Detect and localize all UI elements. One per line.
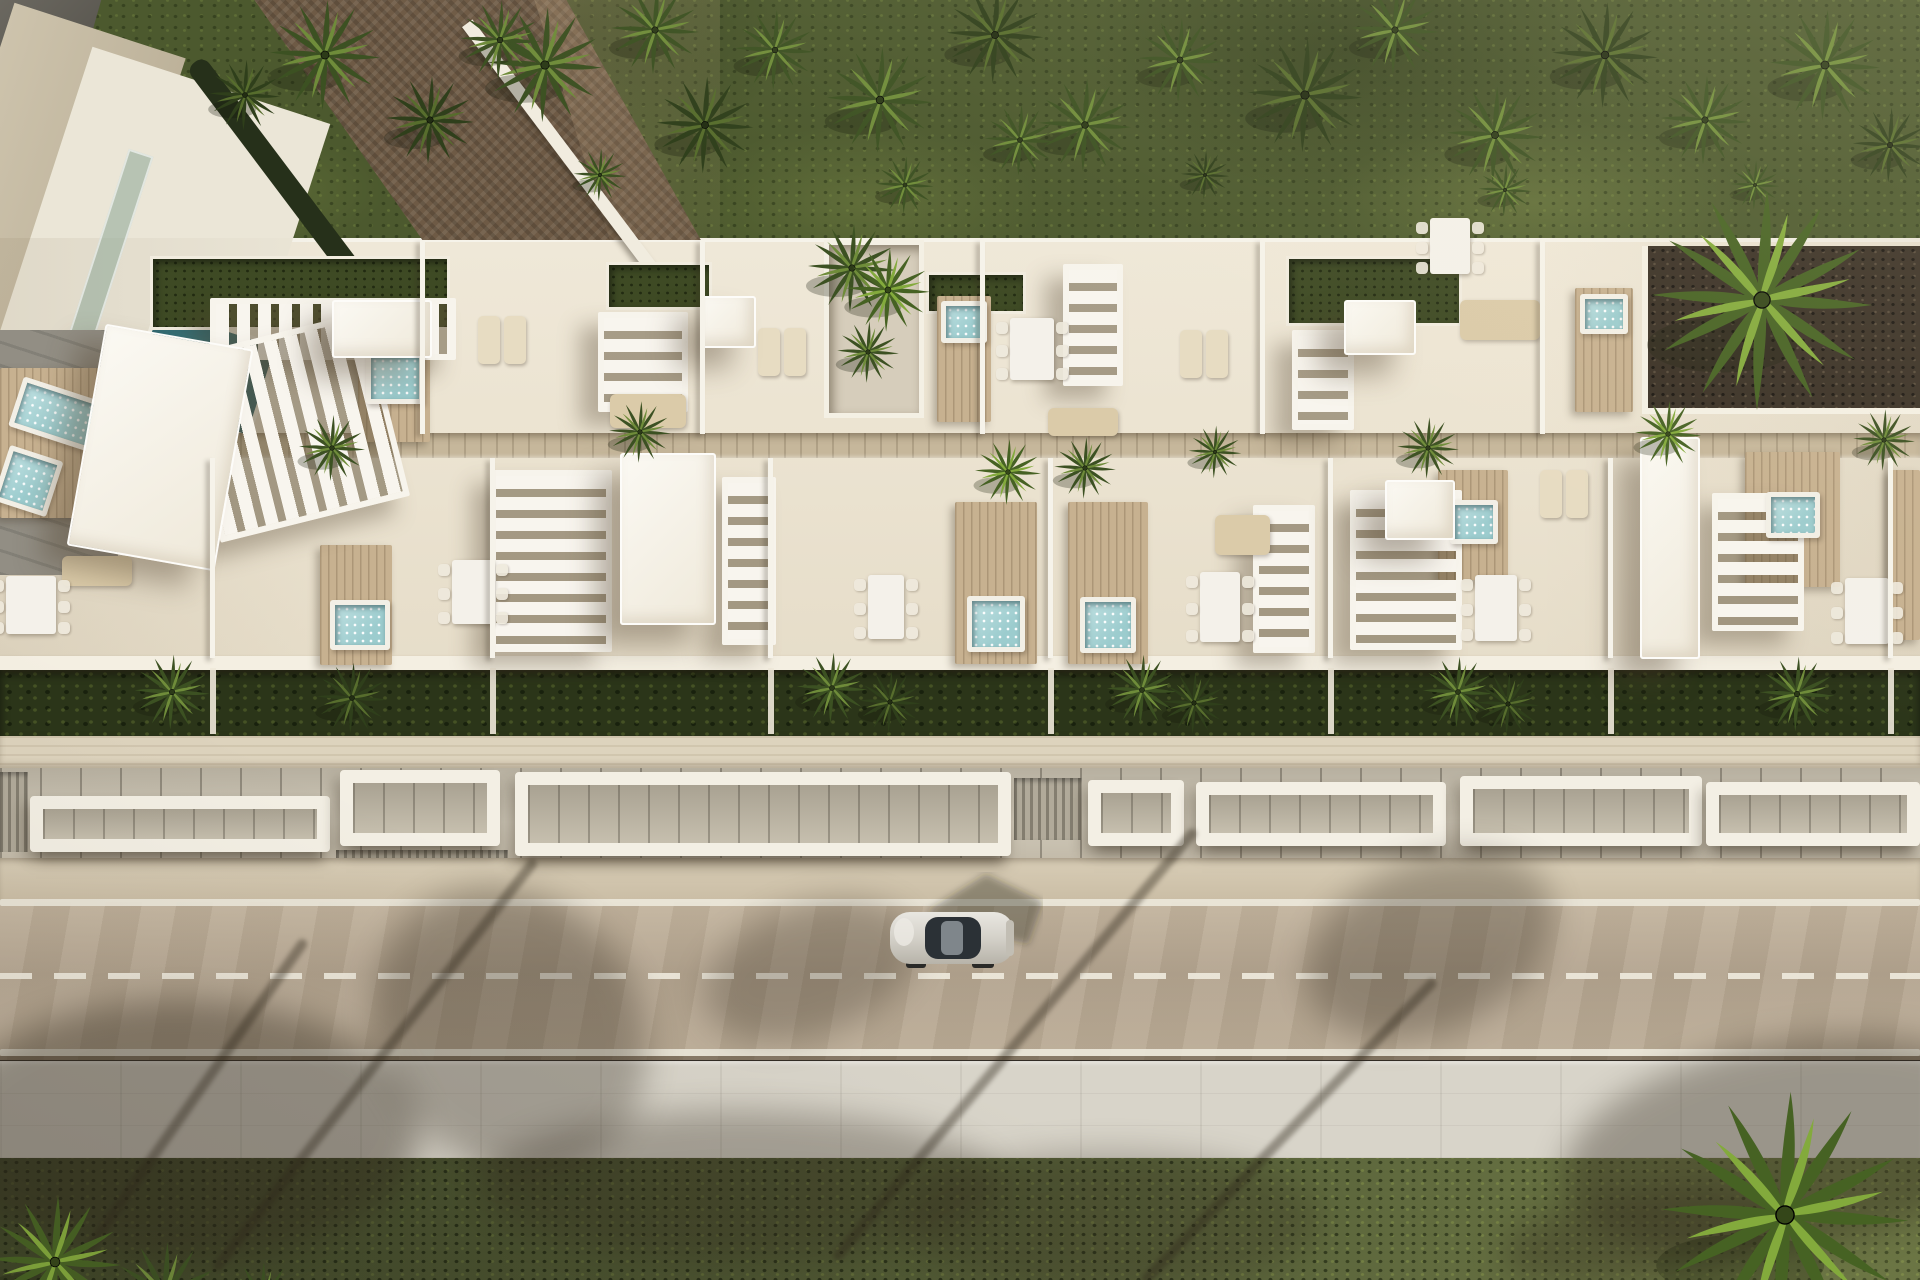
dining-chair xyxy=(1519,604,1531,616)
dining-chair xyxy=(1461,604,1473,616)
dining-chair xyxy=(496,564,508,576)
dining-table xyxy=(868,575,904,639)
balcony-frame xyxy=(30,796,330,852)
silver-car xyxy=(878,872,1043,977)
dining-chair xyxy=(0,580,4,592)
gravel-courtyard xyxy=(1642,246,1920,414)
garden-wall xyxy=(490,668,496,734)
dining-chair xyxy=(1416,242,1428,254)
dining-chair xyxy=(1831,607,1843,619)
garden-wall xyxy=(1328,668,1334,734)
terrace-features-layer xyxy=(0,0,1920,1280)
car-roof-panel xyxy=(941,921,963,955)
dining-chair xyxy=(906,627,918,639)
dining-chair xyxy=(854,603,866,615)
dining-chair xyxy=(1186,630,1198,642)
dining-table xyxy=(452,560,494,624)
sun-lounger xyxy=(784,328,806,376)
dining-chair xyxy=(1186,576,1198,588)
dining-chair xyxy=(438,564,450,576)
party-wall xyxy=(1540,240,1545,434)
sun-lounger xyxy=(1206,330,1228,378)
dining-chair xyxy=(58,622,70,634)
balcony-frame xyxy=(1088,780,1184,846)
dining-chair xyxy=(438,588,450,600)
louver-screen xyxy=(336,850,508,858)
dining-chair xyxy=(1472,262,1484,274)
palm-patio xyxy=(824,240,924,418)
jacuzzi xyxy=(330,600,390,650)
car-trunk xyxy=(1006,920,1014,956)
dining-chair xyxy=(1056,368,1068,380)
louver-pergola xyxy=(1063,264,1123,386)
jacuzzi xyxy=(967,596,1025,652)
car-illustration xyxy=(878,872,1043,977)
dining-table xyxy=(1475,575,1517,641)
party-wall xyxy=(980,240,985,434)
sun-lounger xyxy=(1540,470,1562,518)
balcony-frame xyxy=(1706,782,1920,846)
dining-chair xyxy=(1831,632,1843,644)
dining-table xyxy=(6,576,56,634)
rooftop-lawn xyxy=(606,262,712,310)
dining-chair xyxy=(1461,629,1473,641)
dining-chair xyxy=(1056,345,1068,357)
dining-chair xyxy=(1519,629,1531,641)
dining-table xyxy=(1430,218,1470,274)
dining-table xyxy=(1845,578,1889,644)
party-wall xyxy=(1328,458,1333,658)
louver-pergola xyxy=(490,470,612,652)
party-wall xyxy=(1260,240,1265,434)
sun-lounger xyxy=(758,328,780,376)
dining-chair xyxy=(58,580,70,592)
dining-chair xyxy=(1416,222,1428,234)
outdoor-sofa xyxy=(610,394,686,428)
garden-wall xyxy=(1048,668,1054,734)
dining-chair xyxy=(854,627,866,639)
sun-lounger xyxy=(1566,470,1588,518)
party-wall xyxy=(210,458,215,658)
sun-lounger xyxy=(1180,330,1202,378)
dining-chair xyxy=(438,612,450,624)
stair-volume xyxy=(332,300,432,358)
dining-chair xyxy=(496,588,508,600)
outdoor-sofa xyxy=(1215,515,1270,555)
garden-wall xyxy=(210,668,216,734)
jacuzzi xyxy=(1080,597,1136,653)
garden-wall xyxy=(1608,668,1614,734)
dining-chair xyxy=(1242,603,1254,615)
jacuzzi xyxy=(1450,500,1498,544)
dining-chair xyxy=(1242,630,1254,642)
stair-volume xyxy=(620,453,716,625)
sun-lounger xyxy=(504,316,526,364)
garden-wall xyxy=(768,668,774,734)
dining-table xyxy=(1200,572,1240,642)
balcony-frame xyxy=(1196,782,1446,846)
dining-chair xyxy=(1056,322,1068,334)
party-wall xyxy=(1888,458,1893,658)
party-wall xyxy=(420,240,425,434)
dining-chair xyxy=(496,612,508,624)
dining-chair xyxy=(0,622,4,634)
dining-chair xyxy=(58,601,70,613)
balcony-frame xyxy=(1460,776,1702,846)
party-wall xyxy=(700,240,705,434)
dining-chair xyxy=(906,603,918,615)
outdoor-sofa xyxy=(1048,408,1118,436)
dining-chair xyxy=(1461,579,1473,591)
garden-wall xyxy=(1888,668,1894,734)
aerial-render-scene xyxy=(0,0,1920,1280)
outdoor-sofa xyxy=(62,556,132,586)
stair-volume xyxy=(700,296,756,348)
dining-chair xyxy=(1831,582,1843,594)
dining-chair xyxy=(1186,603,1198,615)
stair-volume xyxy=(1640,437,1700,659)
dining-chair xyxy=(854,579,866,591)
party-wall xyxy=(1608,458,1613,658)
dining-chair xyxy=(1472,242,1484,254)
dining-chair xyxy=(906,579,918,591)
dining-chair xyxy=(996,368,1008,380)
car-hood-highlight xyxy=(894,918,914,946)
jacuzzi xyxy=(1580,294,1628,334)
jacuzzi xyxy=(1766,492,1820,538)
dining-chair xyxy=(0,601,4,613)
sun-lounger xyxy=(478,316,500,364)
stair-volume xyxy=(1344,300,1416,355)
outdoor-sofa xyxy=(1460,300,1540,340)
jacuzzi xyxy=(366,352,424,404)
party-wall xyxy=(490,458,495,658)
dining-chair xyxy=(996,345,1008,357)
dining-chair xyxy=(1519,579,1531,591)
dining-chair xyxy=(1242,576,1254,588)
louver-screen xyxy=(1014,778,1082,840)
party-wall xyxy=(1048,458,1053,658)
balcony-frame xyxy=(340,770,500,846)
dining-chair xyxy=(1472,222,1484,234)
dining-chair xyxy=(996,322,1008,334)
balcony-frame xyxy=(515,772,1011,856)
stair-volume xyxy=(1385,480,1455,540)
louver-screen xyxy=(0,772,28,852)
party-wall xyxy=(768,458,773,658)
dining-table xyxy=(1010,318,1054,380)
dining-chair xyxy=(1416,262,1428,274)
